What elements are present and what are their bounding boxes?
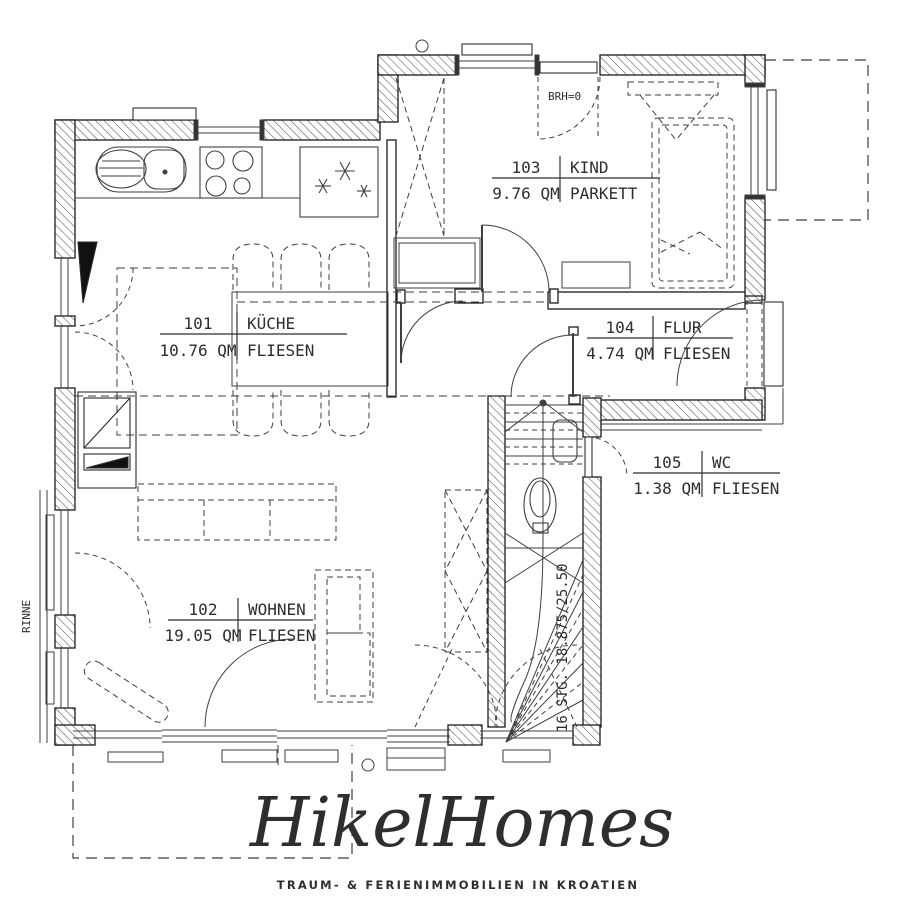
exterior-steps: [108, 748, 550, 770]
wc-fixtures: [524, 420, 577, 533]
room-area: 19.05 QM: [164, 626, 241, 645]
room-label-103: 103 9.76 QM KIND PARKETT: [492, 156, 660, 203]
bed: [652, 118, 734, 288]
brand-logo: HikelHomes: [248, 784, 674, 863]
kind-furniture: [394, 78, 734, 288]
room-name: WC: [712, 453, 731, 472]
hall-cupboard: [445, 490, 487, 652]
walking-line: [511, 400, 543, 722]
living-furniture: [81, 484, 373, 726]
stove: [200, 147, 262, 198]
room-number: 105: [653, 453, 682, 472]
room-number: 101: [184, 314, 213, 333]
downpipe-icon: [362, 759, 374, 771]
room-name: KIND: [570, 158, 609, 177]
floor-plan-drawing: 101 10.76 QM KÜCHE FLIESEN 102 19.05 QM …: [0, 0, 901, 900]
bench: [81, 657, 172, 725]
gutter-annotation: RINNE: [20, 600, 33, 633]
room-label-104: 104 4.74 QM FLUR FLIESEN: [586, 316, 733, 363]
room-area: 9.76 QM: [492, 184, 559, 203]
room-floor: FLIESEN: [663, 344, 730, 363]
sill-height-annotation: BRH=0: [548, 90, 581, 103]
room-name: KÜCHE: [247, 314, 295, 333]
dining-table: [232, 292, 388, 386]
windows: [46, 44, 783, 742]
lounge-chair: [315, 570, 373, 702]
room-number: 104: [606, 318, 635, 337]
kitchen-sink: [96, 147, 186, 192]
downpipe-icon: [416, 40, 428, 52]
dining-chairs: [233, 244, 369, 436]
room-label-101: 101 10.76 QM KÜCHE FLIESEN: [159, 312, 347, 360]
toilet: [524, 478, 556, 532]
room-area: 1.38 QM: [633, 479, 700, 498]
room-name: WOHNEN: [248, 600, 306, 619]
room-label-105: 105 1.38 QM WC FLIESEN: [633, 451, 780, 498]
interior-walls: [387, 140, 745, 404]
room-name: FLUR: [663, 318, 702, 337]
room-area: 10.76 QM: [159, 341, 236, 360]
room-floor: FLIESEN: [247, 341, 314, 360]
floor-plan-page: 101 10.76 QM KÜCHE FLIESEN 102 19.05 QM …: [0, 0, 901, 900]
room-number: 103: [512, 158, 541, 177]
room-number: 102: [189, 600, 218, 619]
room-floor: FLIESEN: [248, 626, 315, 645]
staircase: [505, 400, 583, 742]
room-area: 4.74 QM: [586, 344, 653, 363]
chimney-flue-icon: [78, 242, 97, 303]
terrace-top-right: [765, 60, 868, 220]
shelf: [628, 82, 718, 95]
sofa: [138, 484, 336, 540]
hob-asterisk-box: [300, 147, 378, 217]
room-floor: FLIESEN: [712, 479, 779, 498]
kitchen-fixtures: [75, 147, 378, 217]
room-label-102: 102 19.05 QM WOHNEN FLIESEN: [164, 598, 315, 645]
dining-furniture: [232, 244, 388, 436]
stairs-annotation: 16 STG. 18.875/25.50: [555, 563, 571, 732]
desk: [562, 262, 630, 288]
room-floor: PARKETT: [570, 184, 638, 203]
cupboard: [394, 238, 480, 288]
brand-tagline: TRAUM- & FERIENIMMOBILIEN IN KROATIEN: [277, 878, 639, 892]
